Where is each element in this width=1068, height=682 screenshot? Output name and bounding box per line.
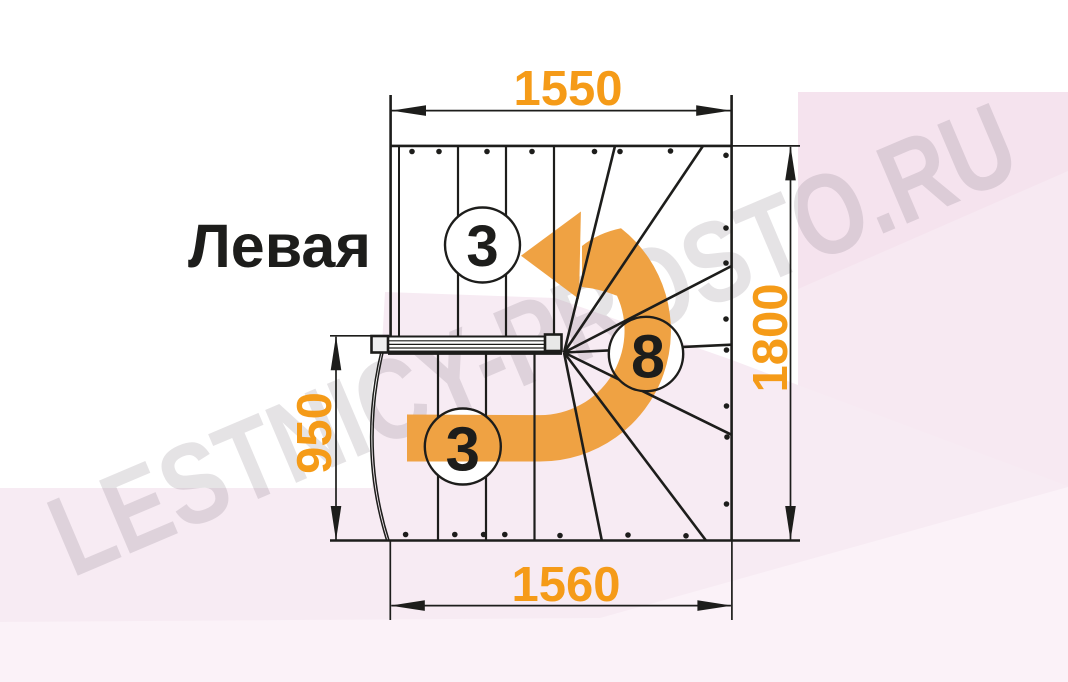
svg-text:3: 3 [466, 214, 498, 279]
svg-text:1800: 1800 [744, 283, 798, 392]
svg-text:3: 3 [446, 416, 480, 485]
svg-text:1560: 1560 [511, 558, 620, 612]
svg-text:8: 8 [631, 323, 665, 391]
svg-text:950: 950 [288, 392, 342, 474]
svg-text:Левая: Левая [188, 212, 371, 280]
svg-text:1550: 1550 [513, 62, 622, 116]
